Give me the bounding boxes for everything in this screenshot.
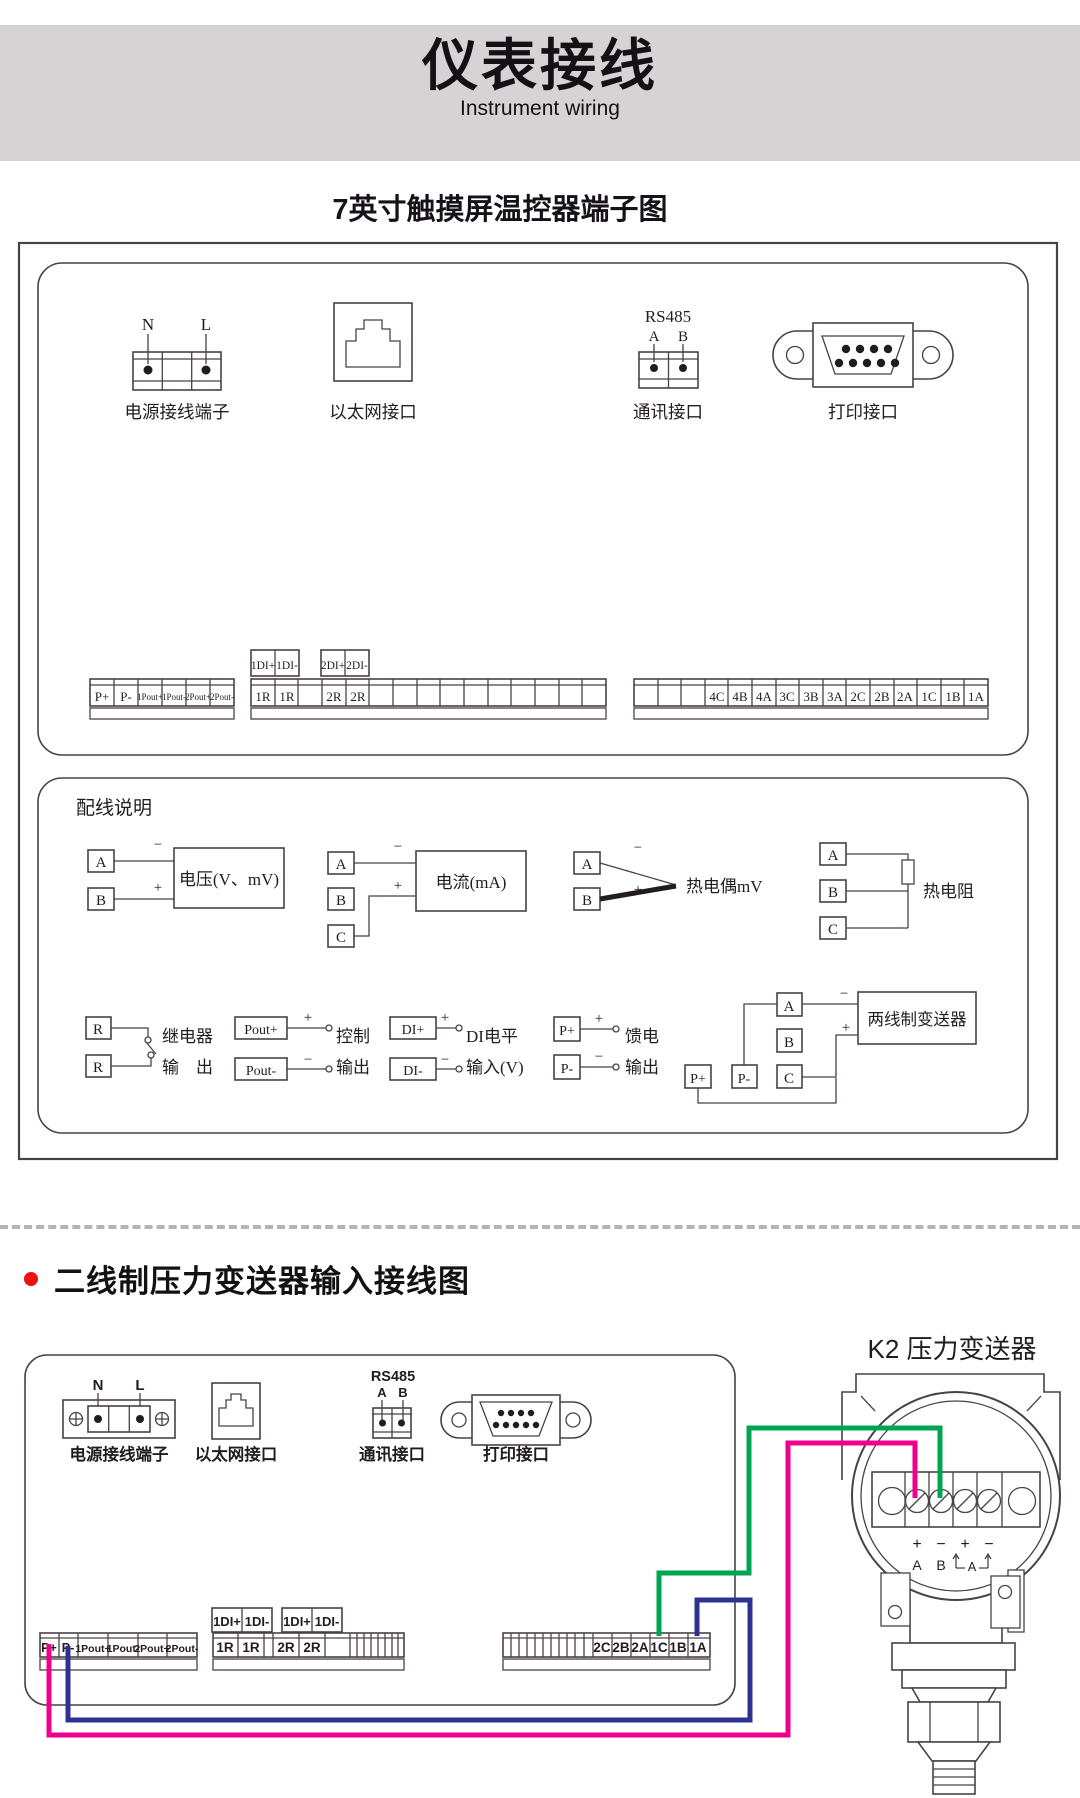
cell-2b: 2B: [874, 689, 890, 704]
cell-1c: 1C: [650, 1640, 668, 1655]
pressure-transmitter-drawing: + − + − A B A: [842, 1374, 1060, 1794]
control-label-1: 控制: [336, 1027, 370, 1046]
power-terminal-icon: N L: [63, 1377, 175, 1438]
terminal-p-minus: P-: [561, 1062, 574, 1077]
plus-sign: +: [595, 1011, 603, 1027]
minus-sign: −: [154, 837, 162, 853]
terminal-r2: R: [93, 1060, 103, 1076]
terminal-b: B: [96, 893, 106, 909]
right-terminal-strip: 4C 4B 4A 3C 3B 3A 2C 2B 2A 1C 1B 1A: [634, 679, 988, 719]
left-terminal-strip: P+ P- 1Pout+ 1Pout- 2Pout+ 2Pout-: [40, 1633, 199, 1670]
hex-nut: [908, 1702, 1000, 1742]
cell-1pout-plus: 1Pout+: [75, 1643, 110, 1655]
minus-sign: −: [595, 1049, 603, 1065]
cell-2r-b: 2R: [303, 1640, 321, 1655]
terminal-b: B: [828, 885, 838, 901]
terminal-pout-minus: Pout-: [246, 1064, 277, 1079]
cell-1b: 1B: [945, 689, 961, 704]
cell-1a: 1A: [689, 1640, 707, 1655]
control-label-2: 输出: [336, 1058, 370, 1077]
middle-terminal-strip: 1R 1R 2R 2R: [213, 1633, 404, 1670]
printer-port-label: 打印接口: [483, 1444, 549, 1464]
cell-1r-a: 1R: [255, 689, 271, 704]
header-banner: 仪表接线 Instrument wiring: [0, 25, 1080, 161]
terminal-c: C: [828, 922, 838, 938]
di-terminal-labels: 1DI+ 1DI- 1DI+ 1DI-: [212, 1608, 342, 1632]
voltage-label: 电压(V、mV): [179, 870, 279, 889]
di2p-label: 1DI+: [283, 1614, 311, 1629]
rs485-terminal-icon: RS485 A B: [639, 307, 698, 388]
cell-2r-a: 2R: [277, 1640, 295, 1655]
di2m-label: 1DI-: [315, 1614, 340, 1629]
comm-port-label: 通讯接口: [359, 1444, 425, 1464]
cell-3c: 3C: [779, 689, 794, 704]
relay-label-2: 输 出: [162, 1058, 213, 1077]
page: { "header": {"title": "仪表接线", "subtitle"…: [0, 0, 1080, 1798]
plus-sign: +: [842, 1020, 850, 1036]
terminal-pout-plus: Pout+: [244, 1023, 278, 1038]
terminal-a: A: [336, 857, 347, 873]
body-block-2: [902, 1670, 1006, 1688]
di2p-label: 2DI+: [321, 660, 345, 672]
cell-3b: 3B: [803, 689, 819, 704]
terminal-c: C: [336, 930, 346, 946]
rs485-pin-a: A: [377, 1385, 387, 1400]
terminal-b: B: [582, 893, 592, 909]
body-block-1: [892, 1643, 1015, 1670]
feed-label-2: 输出: [625, 1058, 659, 1077]
printer-port-icon: [441, 1395, 591, 1445]
right-terminal-strip: 2C 2B 2A 1C 1B 1A: [503, 1633, 710, 1670]
power-terminal-label: 电源接线端子: [125, 402, 230, 422]
pin-n-label: N: [93, 1377, 104, 1394]
terminal-a: A: [828, 848, 839, 864]
pin-l-label: L: [201, 315, 211, 334]
wiring-two-wire-transmitter: A B C P+ P- − + 两线制变送器: [685, 986, 976, 1103]
di-terminal-labels: 1DI+ 1DI- 2DI+ 2DI-: [251, 650, 369, 676]
k2-transmitter-title: K2 压力变送器: [867, 1334, 1036, 1364]
pin-n-label: N: [142, 315, 154, 334]
pin-b-label: B: [936, 1557, 945, 1573]
lower-taper: [918, 1742, 990, 1761]
di1m-label: 1DI-: [276, 660, 298, 672]
pressure-transmitter-wiring-diagram: K2 压力变送器 N L 电源接线端子 以太网接口 RS485 A B 通讯接口: [0, 1240, 1080, 1798]
plus-sign: +: [441, 1010, 449, 1026]
current-label: 电流(mA): [436, 873, 507, 892]
comm-port-label: 通讯接口: [633, 402, 703, 422]
minus-sign: −: [840, 986, 848, 1002]
wiring-feed: P+ P- + − 馈电 输出: [554, 1011, 659, 1079]
terminal-diagram-7inch: N L 电源接线端子 以太网接口 RS485 A B 通讯接口 打印接口: [18, 242, 1058, 1160]
wiring-thermocouple: A B − + 热电偶mV: [574, 840, 763, 910]
terminal-a: A: [784, 999, 795, 1015]
page-subtitle: Instrument wiring: [0, 97, 1080, 121]
wiring-voltage: A B − + 电压(V、mV): [88, 837, 284, 910]
wiring-control: Pout+ Pout- + − 控制 输出: [235, 1010, 370, 1080]
wiring-notes-title: 配线说明: [76, 797, 152, 819]
minus-sign: −: [634, 840, 642, 856]
plus-sign: +: [394, 878, 402, 894]
rs485-name: RS485: [371, 1369, 415, 1385]
cell-1c: 1C: [921, 689, 936, 704]
rs485-pin-a: A: [649, 329, 660, 345]
terminal-p-minus: P-: [738, 1072, 751, 1087]
body-taper: [912, 1688, 996, 1702]
ethernet-port-icon: [212, 1383, 260, 1439]
two-wire-label: 两线制变送器: [868, 1010, 968, 1029]
cell-2c: 2C: [593, 1640, 611, 1655]
cell-1r-b: 1R: [279, 689, 295, 704]
rs485-terminal-icon: RS485 A B: [371, 1369, 415, 1438]
pin-a-label: A: [912, 1557, 922, 1573]
di1p-label: 1DI+: [213, 1614, 241, 1629]
cell-4b: 4B: [732, 689, 748, 704]
thermocouple-label: 热电偶mV: [686, 877, 763, 896]
minus-sign: −: [441, 1052, 449, 1068]
ethernet-port-label: 以太网接口: [195, 1444, 278, 1464]
diagram1-title: 7英寸触摸屏温控器端子图: [0, 186, 1000, 228]
di-label-1: DI电平: [466, 1027, 518, 1046]
cell-2pout-plus: 2Pout+: [185, 692, 211, 702]
feed-label-1: 馈电: [625, 1027, 659, 1046]
pin-a2-label: A: [968, 1560, 977, 1574]
cell-2c: 2C: [850, 689, 865, 704]
terminal-b: B: [336, 893, 346, 909]
cell-2pout-minus: 2Pout-: [210, 692, 234, 702]
terminal-p-plus: P+: [690, 1072, 706, 1087]
cell-1r-b: 1R: [242, 1640, 260, 1655]
rs485-pin-b: B: [398, 1385, 407, 1400]
wiring-notes-frame: [38, 778, 1028, 1133]
cell-2pout-minus: 2Pout-: [166, 1643, 199, 1655]
plus-sign: +: [304, 1010, 312, 1026]
printer-port-label: 打印接口: [828, 402, 898, 422]
dashed-separator: [0, 1225, 1080, 1229]
minus-sign: −: [936, 1536, 945, 1553]
plus-sign: +: [912, 1536, 921, 1553]
terminal-a: A: [96, 855, 107, 871]
plus-sign: +: [960, 1536, 969, 1553]
blue-wire-pminus-to-1a: [68, 1600, 750, 1720]
rtd-label: 热电阻: [923, 882, 974, 901]
power-terminal-label: 电源接线端子: [70, 1444, 170, 1464]
cell-p-plus: P+: [95, 689, 110, 704]
cell-1a: 1A: [968, 689, 985, 704]
di2m-label: 2DI-: [346, 660, 368, 672]
left-terminal-strip: P+ P- 1Pout+ 1Pout- 2Pout+ 2Pout-: [90, 679, 234, 719]
cell-2a: 2A: [897, 689, 914, 704]
rs485-name: RS485: [645, 307, 691, 326]
cell-1pout-plus: 1Pout+: [137, 692, 163, 702]
plus-sign: +: [154, 880, 162, 896]
power-terminal-icon: N L: [133, 315, 221, 390]
di1p-label: 1DI+: [251, 660, 275, 672]
cell-1b: 1B: [669, 1640, 687, 1655]
page-title: 仪表接线: [0, 25, 1080, 97]
wiring-rtd: A B C 热电阻: [820, 843, 974, 939]
pink-wire-pplus-to-transmitter: [49, 1443, 915, 1735]
terminal-c: C: [784, 1071, 794, 1087]
rtd-resistor: [902, 860, 914, 884]
cell-1pout-minus: 1Pout-: [162, 692, 186, 702]
middle-terminal-strip: 1R 1R 2R 2R: [251, 679, 606, 719]
plus-sign: +: [634, 882, 642, 898]
ethernet-port-label: 以太网接口: [329, 402, 417, 422]
cell-3a: 3A: [827, 689, 844, 704]
cell-2pout-plus: 2Pout+: [134, 1643, 169, 1655]
di1m-label: 1DI-: [245, 1614, 270, 1629]
cell-4a: 4A: [756, 689, 773, 704]
cell-p-minus: P-: [120, 689, 132, 704]
terminal-a: A: [582, 857, 593, 873]
ethernet-port-icon: [334, 303, 412, 381]
relay-label-1: 继电器: [162, 1027, 213, 1046]
terminal-di-minus: DI-: [403, 1064, 423, 1079]
minus-sign: −: [394, 839, 402, 855]
wiring-relay: R R 继电器 输 出: [86, 1017, 213, 1077]
wiring-di: DI+ DI- + − DI电平 输入(V): [390, 1010, 524, 1080]
cell-4c: 4C: [709, 689, 724, 704]
wiring-current: A B C − + 电流(mA): [328, 839, 526, 947]
terminal-di-plus: DI+: [402, 1023, 425, 1038]
terminal-r1: R: [93, 1022, 103, 1038]
minus-sign: −: [984, 1536, 993, 1553]
pin-l-label: L: [135, 1377, 144, 1394]
cell-1r-a: 1R: [216, 1640, 234, 1655]
terminal-bar: [872, 1472, 1040, 1527]
terminal-p-plus: P+: [559, 1024, 575, 1039]
minus-sign: −: [304, 1052, 312, 1068]
cell-2r-a: 2R: [326, 689, 342, 704]
printer-port-icon: [773, 323, 953, 387]
cell-2r-b: 2R: [350, 689, 366, 704]
right-lug: [991, 1576, 1020, 1628]
cell-2b: 2B: [612, 1640, 630, 1655]
di-label-2: 输入(V): [466, 1058, 524, 1077]
rs485-pin-b: B: [678, 329, 688, 345]
cell-2a: 2A: [631, 1640, 649, 1655]
terminal-b: B: [784, 1035, 794, 1051]
